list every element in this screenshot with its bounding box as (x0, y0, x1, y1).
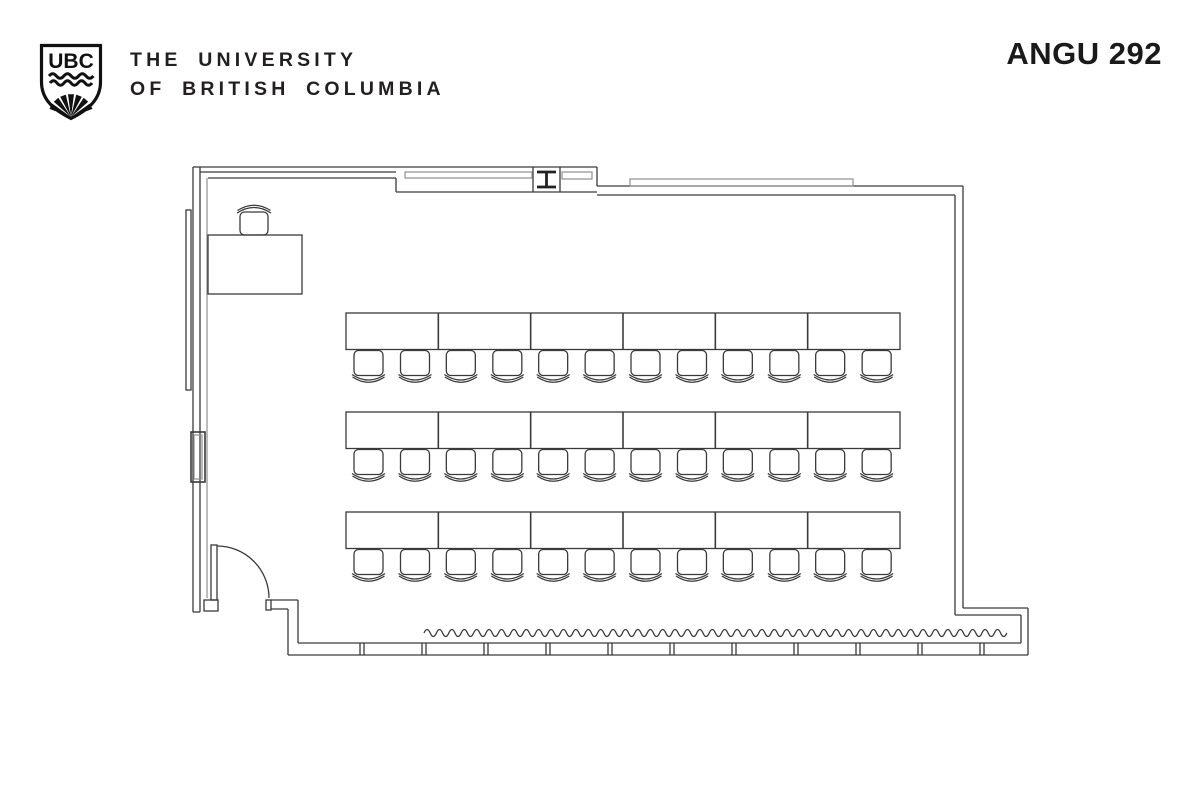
chair-seat (240, 212, 268, 235)
chair-row (352, 450, 893, 482)
instructor-station (208, 205, 302, 294)
chair-row (352, 550, 893, 582)
wall-fixtures (186, 210, 205, 482)
top-wall-strip (405, 172, 532, 178)
chair-seat (401, 550, 430, 575)
window-squiggle (424, 630, 1007, 637)
chair-seat (446, 351, 475, 376)
instructor-desk (208, 235, 302, 294)
walls (193, 167, 1028, 655)
chair-seat (816, 550, 845, 575)
entrance-door (204, 545, 271, 611)
seating (346, 313, 900, 581)
chair-row (352, 351, 893, 383)
top-wall-strip (630, 179, 853, 186)
door-leaf (211, 545, 217, 600)
chair-seat (862, 450, 891, 475)
chair-seat (446, 450, 475, 475)
chair-seat (631, 550, 660, 575)
chair-seat (770, 550, 799, 575)
chair-seat (401, 450, 430, 475)
page: UBC THE UNIVERSITY OF BRITISH COLUMBIA A… (0, 0, 1200, 800)
chair-seat (816, 450, 845, 475)
chair-seat (585, 450, 614, 475)
chair-seat (678, 450, 707, 475)
chair-seat (770, 351, 799, 376)
chair-seat (401, 351, 430, 376)
chair-seat (678, 351, 707, 376)
whiteboard-panel (186, 210, 191, 390)
chair-seat (631, 450, 660, 475)
top-wall-strip (562, 172, 592, 179)
chair-seat (354, 351, 383, 376)
chair-seat (539, 351, 568, 376)
chair-seat (539, 550, 568, 575)
chair-seat (678, 550, 707, 575)
chair-seat (723, 450, 752, 475)
chair-seat (493, 450, 522, 475)
chair-seat (723, 351, 752, 376)
table-row (346, 313, 900, 350)
table-row (346, 512, 900, 549)
chair-seat (585, 550, 614, 575)
chair-seat (354, 550, 383, 575)
chair-seat (862, 351, 891, 376)
window-wall (360, 630, 1007, 656)
chair-seat (723, 550, 752, 575)
chair-seat (446, 550, 475, 575)
chair-seat (539, 450, 568, 475)
chair-seat (493, 550, 522, 575)
door-hinge-jamb (204, 600, 218, 611)
floor-plan (0, 0, 1200, 800)
door-strike-jamb (266, 600, 271, 610)
door-swing-arc (217, 546, 269, 598)
table-row (346, 412, 900, 449)
chair-seat (585, 351, 614, 376)
chair-seat (862, 550, 891, 575)
chair-seat (770, 450, 799, 475)
chair-seat (354, 450, 383, 475)
chair-seat (816, 351, 845, 376)
chair-seat (493, 351, 522, 376)
chair-seat (631, 351, 660, 376)
wall-cabinet-inner (194, 435, 202, 479)
column-symbol (537, 172, 556, 187)
